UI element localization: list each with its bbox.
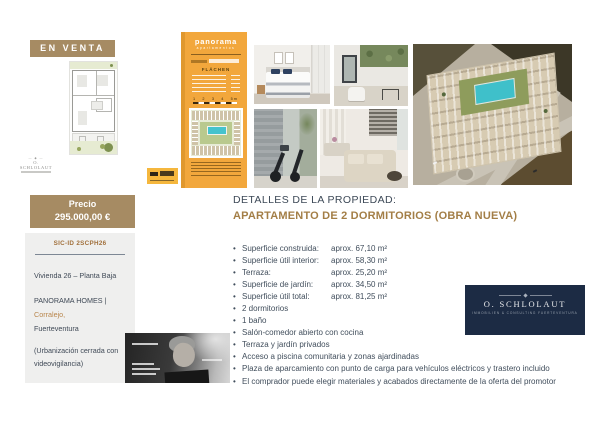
agency-tagline-bar — [21, 171, 51, 173]
details-heading: DETALLES DE LA PROPIEDAD: — [233, 194, 396, 206]
spec-row: •Superficie útil interior:aprox. 58,30 m… — [233, 254, 593, 266]
brochure-section-title: FLÄCHEN — [185, 67, 247, 72]
feature-text: Salón-comedor abierto con cocina — [242, 328, 363, 337]
floorplan-rooms — [72, 70, 115, 132]
agency-logo-small: — ◆ — O. SCHLOLAUT — [18, 156, 54, 172]
separator: | — [105, 296, 107, 305]
bullet: • — [233, 268, 242, 277]
agency-logo-box: O. SCHLOLAUT IMMOBILIEN & CONSULTING FUE… — [465, 285, 585, 335]
sic-id: SIC-ID 2SCPH26 — [34, 240, 126, 247]
brochure-brand: panorama — [185, 38, 247, 46]
bullet: • — [233, 352, 242, 361]
floorplan-garden-bottom — [70, 141, 117, 154]
brochure-scale-bar: 12345 m — [193, 97, 239, 104]
feature-row: •Acceso a piscina comunitaria y zonas aj… — [233, 351, 593, 363]
spec-label: Superficie construida: — [242, 244, 331, 253]
spec-label: Superficie de jardín: — [242, 280, 331, 289]
spec-label: Superficie útil interior: — [242, 256, 331, 265]
agency-name-small: O. SCHLOLAUT — [18, 160, 54, 170]
spec-label: Superficie útil total: — [242, 292, 331, 301]
development-name: PANORAMA HOMES — [34, 296, 105, 305]
feature-text: 1 baño — [242, 316, 266, 325]
bullet: • — [233, 304, 242, 313]
property-flyer: EN VENTA — ◆ — O. SCHLOLAUT Precio 295.0… — [0, 0, 600, 424]
photo-terrace — [334, 45, 408, 106]
dream-logo-word — [160, 171, 174, 176]
dream-logo-mark — [150, 172, 158, 176]
spec-value: aprox. 67,10 m² — [331, 244, 593, 253]
feature-row: •Plaza de aparcamiento con punto de carg… — [233, 363, 593, 375]
gated-community-note: (Urbanización cerrada convideovigilancia… — [34, 344, 126, 370]
location: Fuerteventura — [34, 324, 79, 333]
price-value: 295.000,00 € — [30, 211, 135, 224]
development-line: PANORAMA HOMES | Corralejo,Fuerteventura — [34, 294, 126, 336]
dream-logo — [147, 168, 178, 184]
bullet: • — [233, 328, 242, 337]
floor-plan — [69, 61, 118, 155]
divider-line — [35, 254, 125, 255]
brochure-page: panorama apartamentos FLÄCHEN 12345 m — [181, 32, 247, 188]
spec-row: •Terraza:aprox. 25,20 m² — [233, 266, 593, 278]
brochure-subtitle — [191, 59, 241, 63]
brochure-site-plan — [189, 108, 243, 158]
floorplan-garden-top — [70, 62, 117, 69]
feature-row: •El comprador puede elegir materiales y … — [233, 375, 593, 387]
price-label: Precio — [30, 198, 135, 211]
bullet: • — [233, 377, 242, 386]
agent-photo — [125, 333, 230, 383]
listing-info-box: SIC-ID 2SCPH26 Vivienda 26 – Planta Baja… — [25, 233, 135, 383]
photo-bedroom — [254, 45, 330, 104]
for-sale-badge: EN VENTA — [30, 40, 115, 57]
photo-aerial-complex — [413, 44, 572, 185]
spec-row: •Superficie construida:aprox. 67,10 m² — [233, 242, 593, 254]
agency-name: O. SCHLOLAUT — [465, 299, 585, 309]
bullet: • — [233, 316, 242, 325]
feature-text: Plaza de aparcamiento con punto de carga… — [242, 364, 550, 373]
photo-gym — [254, 109, 317, 188]
bullet: • — [233, 292, 242, 301]
diamond-ornament — [465, 294, 585, 297]
photo-living-room — [320, 109, 408, 188]
feature-row: •Terraza y jardín privados — [233, 339, 593, 351]
feature-text: 2 dormitorios — [242, 304, 288, 313]
brochure-rule — [191, 54, 241, 55]
bullet: • — [233, 256, 242, 265]
spec-label: Terraza: — [242, 268, 331, 277]
bullet: • — [233, 244, 242, 253]
unit-name: Vivienda 26 – Planta Baja — [34, 271, 126, 280]
brochure-area-table — [192, 75, 240, 92]
brochure-disclaimer — [191, 162, 241, 176]
dream-logo-subline — [150, 180, 174, 182]
spec-value: aprox. 25,20 m² — [331, 268, 593, 277]
bullet: • — [233, 340, 242, 349]
location-highlight: Corralejo, — [34, 310, 65, 319]
feature-text: Acceso a piscina comunitaria y zonas aja… — [242, 352, 419, 361]
details-subheading: APARTAMENTO DE 2 DORMITORIOS (OBRA NUEVA… — [233, 210, 517, 222]
bullet: • — [233, 364, 242, 373]
feature-text: Terraza y jardín privados — [242, 340, 330, 349]
spec-value: aprox. 58,30 m² — [331, 256, 593, 265]
feature-text: El comprador puede elegir materiales y a… — [242, 377, 556, 386]
bullet: • — [233, 280, 242, 289]
brochure-brand-sub: apartamentos — [185, 46, 247, 51]
price-box: Precio 295.000,00 € — [30, 195, 135, 228]
agency-tagline: IMMOBILIEN & CONSULTING FUERTEVENTURA — [465, 311, 585, 315]
panorama-logo: panorama apartamentos — [185, 38, 247, 51]
